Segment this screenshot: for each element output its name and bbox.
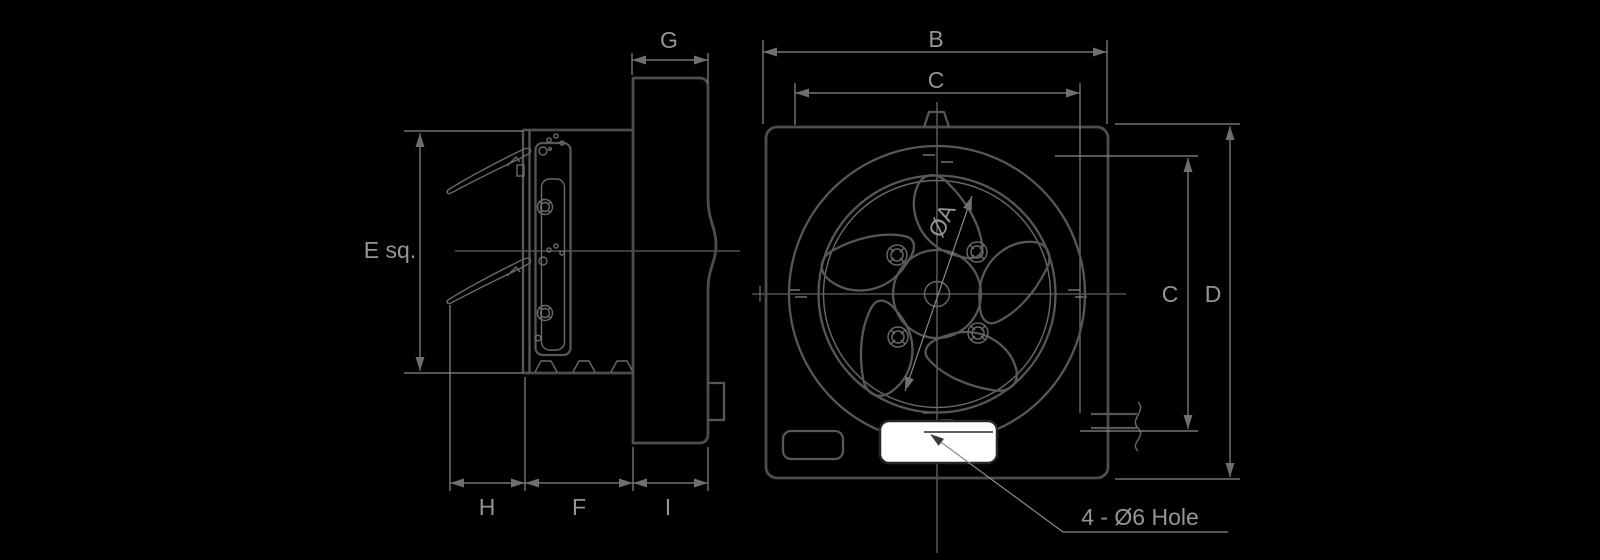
louver-blade xyxy=(447,148,531,193)
channel-screw xyxy=(538,306,553,321)
fan-blade xyxy=(829,295,933,402)
seal-teeth xyxy=(535,361,633,372)
shutter-channel xyxy=(536,143,571,355)
dim-label-i: I xyxy=(665,494,671,520)
dim-label-e: E sq. xyxy=(364,237,416,263)
dimension-hfi: H F I xyxy=(450,305,708,520)
hub-screw xyxy=(887,245,907,265)
latch-hook xyxy=(1091,402,1141,451)
dim-label-g: G xyxy=(660,27,678,53)
fan-blade xyxy=(815,204,919,311)
switch-plate xyxy=(783,431,843,459)
dim-label-c-height: C xyxy=(1162,281,1179,307)
hole-note-label: 4 - Ø6 Hole xyxy=(1081,504,1199,530)
louver-pivot-middle xyxy=(539,244,564,265)
dim-label-d: D xyxy=(1205,281,1222,307)
motor-housing-outline xyxy=(633,78,716,443)
fan-blade xyxy=(979,242,1049,323)
hub-screw xyxy=(888,327,908,347)
dim-label-h: H xyxy=(479,494,496,520)
terminal-box xyxy=(708,383,724,420)
dim-label-a: ØA xyxy=(923,199,961,241)
front-view: ØA 4 - Ø6 Hole B xyxy=(752,26,1240,553)
dim-label-b: B xyxy=(928,26,943,52)
dim-label-c-width: C xyxy=(928,67,945,93)
side-view: E sq. G H F I xyxy=(364,27,740,520)
drawing-canvas: E sq. G H F I xyxy=(0,0,1600,560)
dimension-e: E sq. xyxy=(364,131,523,373)
louver-blade xyxy=(447,258,531,303)
dimension-g: G xyxy=(632,27,708,83)
fan-dimension-diagram: E sq. G H F I xyxy=(0,0,1600,560)
hub-screw xyxy=(967,242,987,262)
channel-screw xyxy=(538,200,553,215)
louver-pivot-top xyxy=(539,134,564,155)
dim-label-f: F xyxy=(572,494,586,520)
